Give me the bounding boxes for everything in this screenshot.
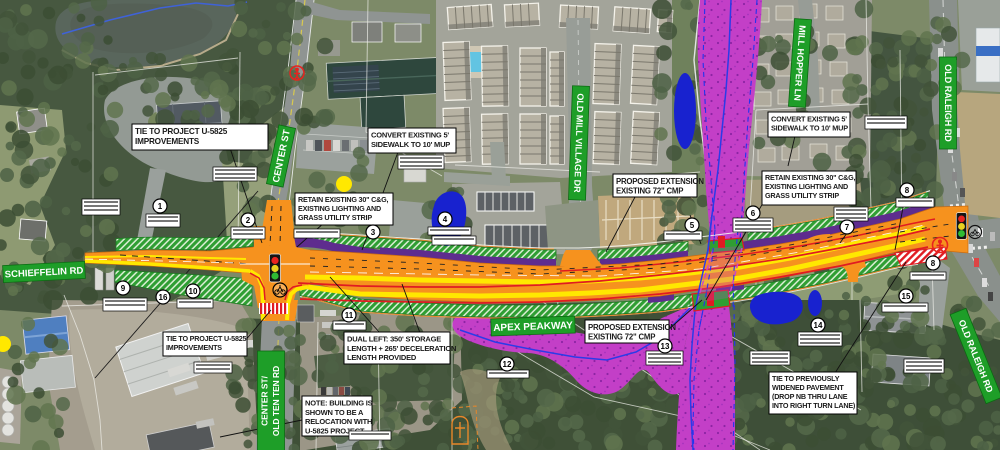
svg-text:SHOWN TO BE A: SHOWN TO BE A — [305, 408, 364, 417]
svg-text:OLD RALEIGH RD: OLD RALEIGH RD — [943, 64, 953, 142]
svg-text:LENGTH PROVIDED: LENGTH PROVIDED — [347, 353, 417, 362]
svg-text:GRASS UTILITY STRIP: GRASS UTILITY STRIP — [298, 213, 372, 222]
svg-text:IMPROVEMENTS: IMPROVEMENTS — [166, 343, 222, 352]
svg-text:PROPOSED EXTENSION: PROPOSED EXTENSION — [588, 323, 676, 332]
svg-text:EXISTING LIGHTING AND: EXISTING LIGHTING AND — [765, 182, 848, 191]
svg-text:OLD TEN TEN RD: OLD TEN TEN RD — [271, 366, 281, 436]
svg-text:RETAIN EXISTING 30" C&G,: RETAIN EXISTING 30" C&G, — [298, 195, 389, 204]
svg-text:6: 6 — [751, 209, 756, 218]
svg-text:TIE TO PROJECT U-5825: TIE TO PROJECT U-5825 — [166, 334, 247, 343]
svg-text:LENGTH + 265' DECELERATION: LENGTH + 265' DECELERATION — [347, 344, 456, 353]
svg-text:14: 14 — [814, 321, 823, 330]
svg-text:EXISTING 72" CMP: EXISTING 72" CMP — [616, 186, 683, 195]
svg-text:3: 3 — [371, 228, 376, 237]
svg-text:7: 7 — [845, 223, 850, 232]
svg-text:GRASS UTILITY STRIP: GRASS UTILITY STRIP — [765, 191, 839, 200]
svg-text:9: 9 — [121, 284, 126, 293]
svg-text:INTO RIGHT TURN LANE): INTO RIGHT TURN LANE) — [772, 401, 856, 410]
svg-text:NOTE: BUILDING IS: NOTE: BUILDING IS — [305, 399, 373, 408]
svg-text:WIDENED PAVEMENT: WIDENED PAVEMENT — [772, 383, 844, 392]
svg-text:12: 12 — [503, 360, 512, 369]
svg-text:RETAIN EXISTING 30" C&G,: RETAIN EXISTING 30" C&G, — [765, 173, 856, 182]
svg-text:PROPOSED EXTENSION: PROPOSED EXTENSION — [616, 177, 704, 186]
svg-text:8: 8 — [905, 186, 910, 195]
svg-text:RELOCATION WITH: RELOCATION WITH — [305, 417, 372, 426]
svg-text:4: 4 — [443, 215, 448, 224]
svg-text:TIE TO PROJECT U-5825: TIE TO PROJECT U-5825 — [135, 127, 228, 136]
svg-text:5: 5 — [690, 221, 695, 230]
svg-text:IMPROVEMENTS: IMPROVEMENTS — [135, 137, 200, 146]
svg-text:TIE TO PREVIOUSLY: TIE TO PREVIOUSLY — [772, 374, 840, 383]
svg-text:CENTER ST/: CENTER ST/ — [260, 375, 270, 425]
svg-text:10: 10 — [189, 287, 198, 296]
svg-text:16: 16 — [159, 293, 168, 302]
svg-text:CONVERT EXISTING 5': CONVERT EXISTING 5' — [371, 131, 449, 140]
svg-text:SIDEWALK TO 10' MUP: SIDEWALK TO 10' MUP — [371, 140, 450, 149]
svg-text:EXISTING LIGHTING AND: EXISTING LIGHTING AND — [298, 204, 381, 213]
svg-text:SIDEWALK TO 10' MUP: SIDEWALK TO 10' MUP — [771, 123, 848, 132]
svg-text:8: 8 — [931, 259, 936, 268]
svg-text:2: 2 — [246, 216, 251, 225]
svg-text:1: 1 — [158, 202, 163, 211]
svg-text:CONVERT EXISTING 5': CONVERT EXISTING 5' — [771, 114, 847, 123]
svg-text:DUAL LEFT: 350' STORAGE: DUAL LEFT: 350' STORAGE — [347, 335, 441, 344]
svg-text:15: 15 — [902, 292, 911, 301]
svg-text:13: 13 — [661, 342, 670, 351]
svg-text:EXISTING 72" CMP: EXISTING 72" CMP — [588, 332, 655, 341]
svg-text:11: 11 — [345, 311, 354, 320]
svg-text:(DROP NB THRU LANE: (DROP NB THRU LANE — [772, 392, 848, 401]
